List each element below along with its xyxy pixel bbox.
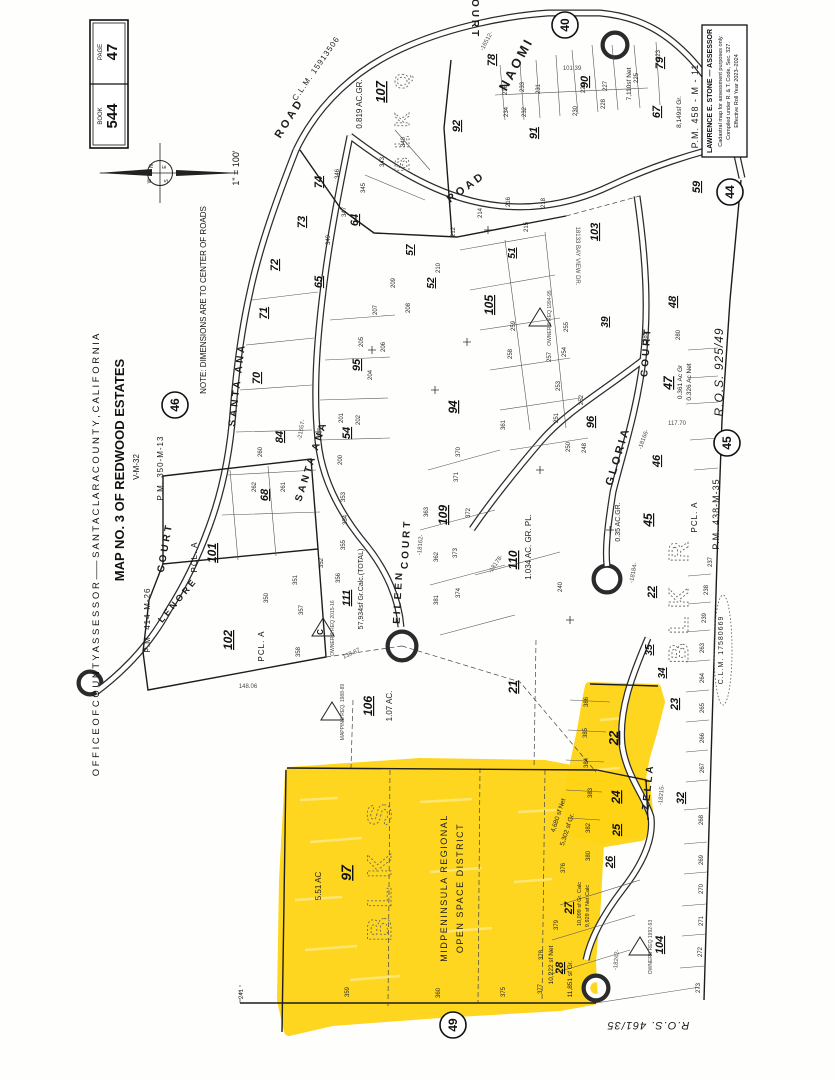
map-label-lt: 374 bbox=[456, 587, 462, 598]
map-label-lt: 376 bbox=[561, 862, 567, 873]
map-label-dm: -18178- bbox=[488, 554, 505, 574]
map-label-ri: R.O.S. 925/49 bbox=[712, 327, 726, 416]
map-label-lt: 205 bbox=[359, 336, 365, 347]
map-label-lt: 259 bbox=[511, 320, 517, 331]
map-label-lt: 267 bbox=[700, 762, 706, 773]
map-label-lt: 238 bbox=[704, 584, 710, 595]
map-label-pr: 48 bbox=[667, 295, 679, 309]
map-label-lt: 360 bbox=[436, 987, 442, 998]
map-label-lt: 382 bbox=[586, 822, 592, 833]
map-label-lt: 375 bbox=[501, 986, 507, 997]
map-label-pr: 52 bbox=[426, 277, 437, 289]
map-label-pr: 111 bbox=[341, 590, 353, 607]
map-label-lt: 377 bbox=[538, 983, 544, 994]
map-label-lt: 379 bbox=[554, 919, 560, 930]
map-label-lt: 380 bbox=[586, 850, 592, 861]
map-label-st: COURT bbox=[469, 0, 480, 39]
map-label-lt: 237 bbox=[708, 556, 714, 567]
map-label-lt: 210 bbox=[436, 262, 442, 273]
map-label-ar: 0.819 AC.GR. bbox=[355, 79, 364, 128]
map-label-bk: BLK S bbox=[361, 795, 399, 942]
map-label-dm: OWNERS REQ 1992-93 bbox=[648, 920, 654, 975]
map-label-st: LENORE bbox=[156, 576, 199, 625]
map-label-lt: 225 bbox=[634, 72, 640, 83]
map-label-lt: 262 bbox=[252, 481, 258, 492]
map-label-st: EILEEN bbox=[392, 570, 406, 625]
map-label-lt: 234 bbox=[504, 106, 510, 117]
map-label-lt: 265 bbox=[700, 702, 706, 713]
map-label-lt: 228 bbox=[601, 98, 607, 109]
map-label-pr: 97 bbox=[338, 864, 354, 881]
map-label-ds: OPEN SPACE DISTRICT bbox=[455, 823, 465, 953]
map-label-dm: 18133 BAY VIEW DR. bbox=[574, 227, 580, 286]
map-label-ar: 57,934sf Gr.Calc.(TOTAL) bbox=[358, 549, 365, 630]
map-label-lt: 260 bbox=[258, 446, 264, 457]
map-label-dm: -16512- bbox=[480, 31, 495, 52]
map-label-lt: 372 bbox=[466, 507, 472, 518]
map-label-ar: 1.07 AC. bbox=[385, 691, 394, 722]
map-label-lt: 202 bbox=[356, 414, 362, 425]
map-label-dm: -18166- bbox=[638, 429, 651, 450]
map-label-lt: 362 bbox=[434, 551, 440, 562]
map-label-pr: 24 bbox=[609, 790, 623, 805]
map-label-pr: 74 bbox=[313, 176, 325, 188]
map-label-dm: 148.06 bbox=[239, 684, 258, 690]
map-label-lt: 204 bbox=[368, 369, 374, 380]
map-label-pr: 32 bbox=[675, 792, 687, 804]
map-label-ar: 8,149sf Gr. bbox=[676, 96, 683, 128]
map-label-ar: 1.034 AC. GR. PL. bbox=[524, 514, 533, 580]
map-label-lt: 270 bbox=[699, 883, 705, 894]
map-label-ar: 5.51 AC bbox=[314, 872, 323, 901]
compass-w: W bbox=[147, 178, 153, 183]
map-label-pr: 22 bbox=[646, 586, 658, 599]
map-label-lt: 269 bbox=[699, 854, 705, 865]
map-label-pr: 71 bbox=[258, 307, 270, 319]
scale-label: 1" = 100' bbox=[231, 150, 241, 185]
dimensions-note: NOTE: DIMENSIONS ARE TO CENTER OF ROADS bbox=[199, 206, 208, 394]
map-label-lt: 261 bbox=[281, 481, 287, 492]
map-label-lt: 356 bbox=[336, 572, 342, 583]
sheet-ref-circle-40: 40 bbox=[552, 12, 578, 38]
map-label-pr: 104 bbox=[654, 936, 666, 954]
map-label-lt: 255 bbox=[564, 321, 570, 332]
map-label-lt: 386 bbox=[584, 696, 590, 707]
map-label-pr: 59 bbox=[691, 180, 703, 193]
map-label-rf: P.M. 350-M-13 bbox=[156, 436, 165, 501]
map-label-lt: 240 bbox=[558, 581, 564, 592]
map-label-lt: 340 bbox=[401, 136, 407, 147]
map-label-lt: 212 bbox=[451, 226, 457, 237]
map-label-lt: 216 bbox=[506, 196, 512, 207]
sheet-ref-circle-49: 49 bbox=[440, 1012, 466, 1038]
map-label-rf: P.M. 414-M-26 bbox=[143, 588, 152, 653]
map-label-dm: 117.70 bbox=[668, 421, 687, 427]
map-label-pr: 102 bbox=[221, 630, 235, 650]
map-label-pr: 72 bbox=[269, 259, 281, 271]
map-label-st: SANTA ANA bbox=[227, 342, 248, 427]
compass-n: N bbox=[149, 164, 155, 168]
map-label-dm: -18184- bbox=[629, 562, 639, 583]
map-label-lt: 258 bbox=[508, 348, 514, 359]
map-label-dm: 138.87 bbox=[342, 647, 362, 660]
map-label-pr: 26 bbox=[604, 855, 616, 869]
map-label-pr: 70 bbox=[251, 371, 263, 384]
map-label-st: COURT bbox=[156, 522, 176, 574]
map-label-pr: 68 bbox=[259, 488, 271, 501]
map-label-lt: 353 bbox=[341, 491, 347, 502]
sheet-ref-circle-46: 46 bbox=[162, 392, 188, 418]
triangle-letter: C bbox=[316, 629, 325, 635]
sheet-ref-circle-44: 44 bbox=[717, 179, 743, 205]
map-label-lt: 347 bbox=[342, 206, 348, 217]
map-label-pc: PCL. A bbox=[690, 502, 699, 533]
map-label-lt: 358 bbox=[296, 646, 302, 657]
map-label-pr: 65 bbox=[313, 275, 325, 288]
map-label-lt: 250 bbox=[566, 441, 572, 452]
map-label-pr: 103 bbox=[589, 223, 601, 241]
map-label-lt: 230 bbox=[573, 105, 579, 116]
map-label-dm: OWNER'S REQ 1994-95 bbox=[547, 290, 553, 346]
map-label-lt: 253 bbox=[556, 380, 562, 391]
office-line: O F F I C E O F C O U N T Y A S S E S S … bbox=[91, 333, 102, 776]
map-label-lt: 383 bbox=[588, 787, 594, 798]
map-label-pr: 91 bbox=[528, 127, 540, 139]
map-label-lt: 281 bbox=[643, 331, 649, 342]
map-label-pr: 51 bbox=[507, 247, 518, 259]
map-label-lt: 232 bbox=[522, 106, 528, 117]
map-label-pr: 57 bbox=[405, 244, 416, 256]
map-label-lt: 343 bbox=[380, 156, 386, 167]
map-label-pr: 101 bbox=[205, 543, 219, 563]
map-label-rf: C.L.M. 17580669 bbox=[718, 616, 725, 685]
map-label-dm: -21557- bbox=[297, 419, 307, 440]
map-label-lt: 241 bbox=[239, 988, 245, 999]
map-label-rf: P.M. 458 - M - 11 bbox=[690, 64, 700, 149]
map-label-pr: 22 bbox=[606, 730, 621, 746]
map-label-lt: 361 bbox=[501, 419, 507, 430]
map-label-lt: 201 bbox=[339, 412, 345, 423]
map-label-lt: 273 bbox=[696, 982, 702, 993]
map-label-lt: 229 bbox=[581, 82, 587, 93]
map-label-pr: 34 bbox=[657, 667, 668, 679]
map-label-lt: 233 bbox=[520, 81, 526, 92]
map-label-lt: 352 bbox=[319, 557, 325, 568]
map-label-lt: 263 bbox=[700, 642, 706, 653]
map-label-lt: 268 bbox=[699, 814, 705, 825]
map-label-pr: 92 bbox=[451, 120, 463, 132]
map-label-pr: 47 bbox=[661, 375, 675, 391]
map-label-lt: 248 bbox=[582, 442, 588, 453]
sheet-ref-circle-45: 45 bbox=[714, 430, 740, 456]
assessor-line2: Cadastral map for assessment purposes on… bbox=[718, 35, 724, 147]
map-label-pr: 105 bbox=[482, 295, 496, 315]
map-label-lt: 280 bbox=[676, 329, 682, 340]
map-label-pr: 96 bbox=[585, 415, 597, 428]
map-label-lt: 236 bbox=[503, 84, 509, 95]
map-label-lt: 363 bbox=[424, 506, 430, 517]
map-label-pr: 27 bbox=[563, 901, 575, 915]
map-label-dm: OWNER'S REQ 2015-16 bbox=[330, 600, 336, 656]
map-label-lt: 346 bbox=[335, 168, 341, 179]
map-label-pr: 64 bbox=[349, 214, 361, 226]
map-label-lt: 354 bbox=[343, 514, 349, 525]
assessor-map-page: PAGE 47 BOOK 544 N E S W 1" = 100' O F F… bbox=[0, 0, 835, 1080]
compass-e: E bbox=[162, 165, 168, 169]
map-label-lt: 257 bbox=[547, 351, 553, 362]
map-label-pr: 28 bbox=[554, 961, 566, 975]
map-label-lt: 351 bbox=[293, 574, 299, 585]
map-label-st: NAOMI bbox=[496, 35, 537, 94]
map-label-lt: 208 bbox=[406, 302, 412, 313]
assessor-line1: LAWRENCE E. STONE — ASSESSOR bbox=[707, 29, 714, 153]
map-label-bk: BLK Q bbox=[392, 64, 414, 171]
map-label-dm: -18215- bbox=[658, 784, 666, 805]
map-label-st: COURT bbox=[400, 518, 414, 569]
map-label-lt: 266 bbox=[700, 732, 706, 743]
map-label-lt: 200 bbox=[338, 454, 344, 465]
map-label-lt: 209 bbox=[391, 277, 397, 288]
sheet-ref-number: 45 bbox=[720, 436, 734, 450]
map-label-lt: 214 bbox=[478, 207, 484, 218]
map-label-pr: 23 bbox=[669, 698, 681, 711]
map-label-lt: 218 bbox=[541, 197, 547, 208]
map-label-pr: 39 bbox=[600, 316, 611, 328]
map-label-lt: 385 bbox=[583, 727, 589, 738]
map-label-pr: 95 bbox=[351, 358, 363, 371]
map-label-lt: 264 bbox=[700, 672, 706, 683]
map-label-ar: 7,110sf Net bbox=[626, 67, 633, 100]
map-label-ar: 0.326 Ac Net bbox=[686, 363, 693, 400]
book-value: 544 bbox=[104, 103, 121, 129]
map-label-lt: 355 bbox=[341, 539, 347, 550]
book-page-box: PAGE 47 BOOK 544 bbox=[90, 20, 128, 148]
map-label-lt: 227 bbox=[603, 80, 609, 91]
map-label-lt: 231 bbox=[536, 83, 542, 94]
assessor-box: LAWRENCE E. STONE — ASSESSOR Cadastral m… bbox=[702, 25, 747, 157]
map-label-lt: 215 bbox=[524, 221, 530, 232]
map-label-lt: 223 bbox=[656, 49, 662, 60]
map-label-dm: MAPPING REQ. 1988-89 bbox=[340, 684, 346, 741]
map-label-lt: 373 bbox=[453, 547, 459, 558]
map-label-ar: 11,851 sf Gr. bbox=[567, 960, 574, 997]
assessor-line4: Effective Roll Year 2023–2024 bbox=[734, 54, 740, 128]
sheet-ref-number: 49 bbox=[446, 1018, 460, 1032]
map-label-pr: 78 bbox=[486, 53, 498, 66]
map-label-pr: 54 bbox=[341, 427, 353, 439]
assessor-map: PAGE 47 BOOK 544 N E S W 1" = 100' O F F… bbox=[0, 0, 835, 1080]
map-label-pr: 109 bbox=[436, 505, 450, 525]
map-label-ar: 0.35 AC.GR. bbox=[615, 502, 622, 541]
map-label-lt: 239 bbox=[702, 612, 708, 623]
map-label-rf: P.M. 438-M-35 bbox=[711, 478, 721, 549]
assessor-line3: Compiled under R. & T. Code, Sec. 327. bbox=[726, 42, 732, 140]
map-label-pr: 107 bbox=[373, 80, 388, 102]
map-label-ds: MIDPENINSULA REGIONAL bbox=[439, 814, 449, 962]
map-label-pr: 106 bbox=[361, 696, 375, 716]
map-label-ri: R.O.S. 461/35 bbox=[607, 1019, 690, 1031]
compass-s: S bbox=[164, 179, 170, 183]
map-label-pr: 110 bbox=[506, 550, 520, 569]
map-label-lt: 370 bbox=[456, 446, 462, 457]
map-label-pr: 46 bbox=[651, 454, 663, 468]
sheet-ref-number: 46 bbox=[168, 398, 182, 412]
map-label-lt: 252 bbox=[579, 394, 585, 405]
map-label-lt: 359 bbox=[345, 986, 351, 997]
map-label-pr: 45 bbox=[641, 513, 655, 528]
map-label-pc: PCL. A bbox=[190, 542, 199, 573]
map-label-lt: 251 bbox=[554, 412, 560, 423]
map-label-lt: 384 bbox=[584, 757, 590, 768]
map-label-lt: 271 bbox=[699, 915, 705, 926]
map-label-ar: 10,099 sf Gr. Calc bbox=[577, 882, 583, 926]
map-label-lt: 254 bbox=[562, 346, 568, 357]
map-label-bk: BLK R bbox=[663, 533, 694, 664]
sheet-ref-number: 44 bbox=[723, 185, 737, 199]
map-label-lt: 350 bbox=[264, 592, 270, 603]
map-label-pr: 73 bbox=[296, 216, 308, 228]
map-label-pr: 67 bbox=[651, 105, 663, 118]
map-label-lt: 357 bbox=[299, 604, 305, 615]
map-label-pr: 21 bbox=[506, 680, 520, 695]
map-label-lt: 349 bbox=[326, 234, 332, 245]
map-label-pr: 35 bbox=[644, 644, 655, 656]
map-label-pr: 94 bbox=[446, 400, 460, 414]
page-value: 47 bbox=[104, 44, 121, 61]
map-label-ar: 9,929 sf Net Calc bbox=[585, 885, 591, 927]
map-label-ar: 0.361 Ac Gr bbox=[677, 364, 684, 399]
map-label-dm: -18242- bbox=[613, 949, 621, 970]
map-label-lt: 381 bbox=[434, 594, 440, 605]
map-label-lt: 207 bbox=[373, 304, 379, 315]
map-label-dm: -18162- bbox=[417, 534, 425, 555]
map-label-dm: 101.39 bbox=[563, 66, 582, 72]
map-label-lt: 378 bbox=[539, 949, 545, 960]
sheet-ref-number: 40 bbox=[558, 18, 572, 32]
map-label-pc: PCL. A bbox=[257, 631, 266, 662]
map-label-pr: 25 bbox=[611, 823, 623, 837]
map-title: MAP NO. 3 OF REDWOOD ESTATES bbox=[112, 358, 127, 581]
map-label-lt: 345 bbox=[361, 182, 367, 193]
compass-rose-icon: N E S W bbox=[98, 143, 240, 203]
map-label-lt: 272 bbox=[698, 946, 704, 957]
map-label-lt: 371 bbox=[454, 471, 460, 482]
map-label-lt: 206 bbox=[381, 341, 387, 352]
map-subtitle: V-M-32 bbox=[132, 454, 141, 480]
map-label-pr: 84 bbox=[274, 431, 286, 443]
